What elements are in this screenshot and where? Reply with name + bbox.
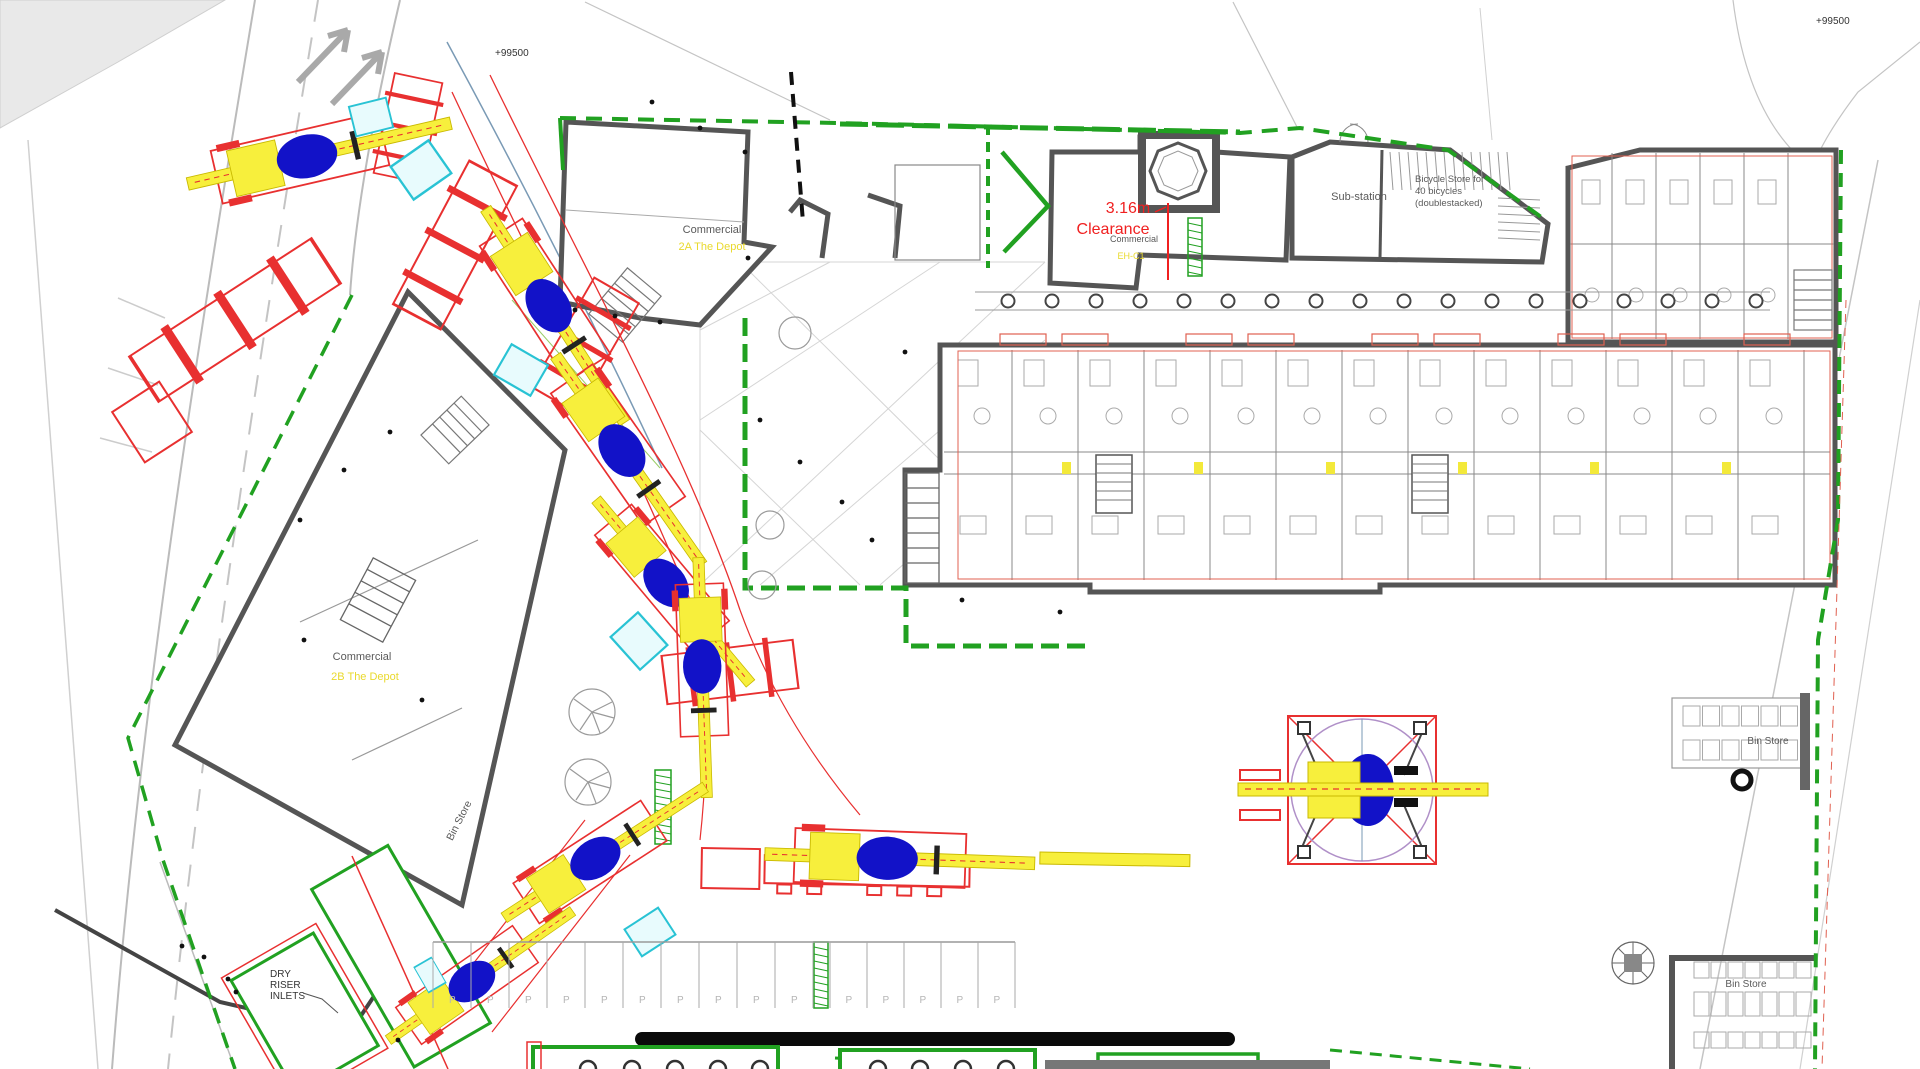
- tree: [565, 759, 611, 805]
- door-highlight: [1458, 462, 1467, 474]
- bin: [1745, 992, 1760, 1016]
- door-highlight: [1722, 462, 1731, 474]
- survey-dot: [650, 100, 655, 105]
- column: [1266, 295, 1279, 308]
- dry-riser-label-1: DRY: [270, 969, 291, 980]
- bin-store-right-upper-label: Bin Store: [1747, 736, 1789, 747]
- datum-level-label: +99500: [1816, 16, 1850, 27]
- survey-dot: [342, 468, 347, 473]
- site-plan-canvas: PPPPPPPPPPPPPPP +99500 +99500 Commercial…: [0, 0, 1920, 1069]
- column: [1046, 295, 1059, 308]
- door-highlight: [1194, 462, 1203, 474]
- bicycle-store-label-1: Bicycle Store for: [1415, 174, 1484, 185]
- bin: [1694, 992, 1709, 1016]
- column: [1134, 295, 1147, 308]
- bicycle-store-label-2: 40 bicycles: [1415, 186, 1462, 197]
- commercial-eh-title: Commercial: [1110, 234, 1158, 244]
- datum-level-label: +99500: [495, 48, 529, 59]
- survey-dot: [840, 500, 845, 505]
- spiral-stair: [1612, 942, 1654, 984]
- column: [1442, 295, 1455, 308]
- survey-dot: [798, 460, 803, 465]
- parking-stall-label: P: [639, 995, 646, 1006]
- bin: [1762, 962, 1777, 978]
- survey-dot: [870, 538, 875, 543]
- survey-dot: [758, 418, 763, 423]
- survey-dot: [180, 944, 185, 949]
- bin: [1728, 992, 1743, 1016]
- parking-stall-label: P: [715, 995, 722, 1006]
- column: [1354, 295, 1367, 308]
- survey-dot: [234, 990, 239, 995]
- bin: [1762, 992, 1777, 1016]
- column: [1750, 295, 1763, 308]
- column: [1706, 295, 1719, 308]
- bin: [1779, 1032, 1794, 1048]
- commercial-2a-title: Commercial: [683, 224, 742, 236]
- commercial-eh-unit: EH-C1: [1117, 251, 1144, 261]
- column: [1618, 295, 1631, 308]
- column: [1090, 295, 1103, 308]
- dry-riser-label-2: RISER: [270, 980, 301, 991]
- survey-dot: [302, 638, 307, 643]
- parking-stall-label: P: [920, 995, 927, 1006]
- mobile-crane: [764, 822, 1036, 894]
- survey-dot: [226, 977, 231, 982]
- parking-stall-label: P: [957, 995, 964, 1006]
- bin: [1796, 962, 1811, 978]
- scale-bar: [635, 1032, 1235, 1046]
- building-east-wing: [1568, 150, 1836, 342]
- survey-dot: [202, 955, 207, 960]
- bicycle-store-label-3: (doublestacked): [1415, 198, 1483, 209]
- parking-stall-label: P: [994, 995, 1001, 1006]
- bin: [1711, 1032, 1726, 1048]
- building-main-apartment-block: [905, 334, 1835, 592]
- small-room: [895, 165, 980, 260]
- clearance-value: 3.16m: [1106, 200, 1150, 217]
- manhole: [1733, 771, 1751, 789]
- bin-store-right-upper: [1672, 693, 1810, 790]
- survey-dot: [420, 698, 425, 703]
- commercial-2a-unit: 2A The Depot: [678, 241, 745, 253]
- column: [1002, 295, 1015, 308]
- parking-stall-label: P: [883, 995, 890, 1006]
- survey-dot: [1058, 610, 1063, 615]
- bottom-structures: [527, 1042, 1330, 1069]
- traffic-island: [0, 0, 225, 128]
- gate-arrow-icon: [1002, 152, 1048, 252]
- bin: [1728, 1032, 1743, 1048]
- survey-dot: [903, 350, 908, 355]
- bin: [1745, 1032, 1760, 1048]
- bin: [1728, 962, 1743, 978]
- column: [1574, 295, 1587, 308]
- substation-label: Sub-station: [1331, 191, 1387, 203]
- parking-stall-label: P: [449, 995, 456, 1006]
- survey-dot: [698, 126, 703, 131]
- column: [1178, 295, 1191, 308]
- building-commercial-2b: [175, 292, 565, 905]
- bin-store-right-lower-label: Bin Store: [1725, 979, 1767, 990]
- parking-stall-label: P: [753, 995, 760, 1006]
- column: [1310, 295, 1323, 308]
- site-plan-drawing: PPPPPPPPPPPPPPP +99500 +99500 Commercial…: [0, 0, 1920, 1069]
- bin: [1779, 962, 1794, 978]
- door-highlight: [1590, 462, 1599, 474]
- survey-dot: [746, 256, 751, 261]
- survey-dot: [396, 1038, 401, 1043]
- parking-stall-label: P: [846, 995, 853, 1006]
- bin-store-right-lower: [1612, 942, 1815, 1069]
- survey-dot: [298, 518, 303, 523]
- bin: [1779, 992, 1794, 1016]
- survey-dot: [613, 314, 618, 319]
- survey-dot: [960, 598, 965, 603]
- survey-dot: [573, 308, 578, 313]
- parking-stall-label: P: [677, 995, 684, 1006]
- column: [1222, 295, 1235, 308]
- mobile-crane: [489, 764, 721, 942]
- building-central-commercial: [1050, 135, 1290, 288]
- parking-stall-label: P: [525, 995, 532, 1006]
- door-highlight: [1062, 462, 1071, 474]
- bin: [1745, 962, 1760, 978]
- bin: [1694, 962, 1709, 978]
- bin: [1762, 1032, 1777, 1048]
- survey-dot: [388, 430, 393, 435]
- commercial-2b-title: Commercial: [333, 651, 392, 663]
- parking-stall-label: P: [791, 995, 798, 1006]
- column: [1486, 295, 1499, 308]
- commercial-2b-unit: 2B The Depot: [331, 671, 399, 683]
- parking-stall-label: P: [601, 995, 608, 1006]
- crane-lifting-position: [1238, 716, 1488, 864]
- parking-stall-label: P: [487, 995, 494, 1006]
- column: [1662, 295, 1675, 308]
- walls-misc: [790, 195, 900, 258]
- door-highlight: [1326, 462, 1335, 474]
- survey-dot: [658, 320, 663, 325]
- dry-riser-label-3: INLETS: [270, 991, 305, 1002]
- column: [1530, 295, 1543, 308]
- tree: [569, 689, 615, 735]
- survey-dot: [743, 150, 748, 155]
- column: [1398, 295, 1411, 308]
- parking-stall-label: P: [563, 995, 570, 1006]
